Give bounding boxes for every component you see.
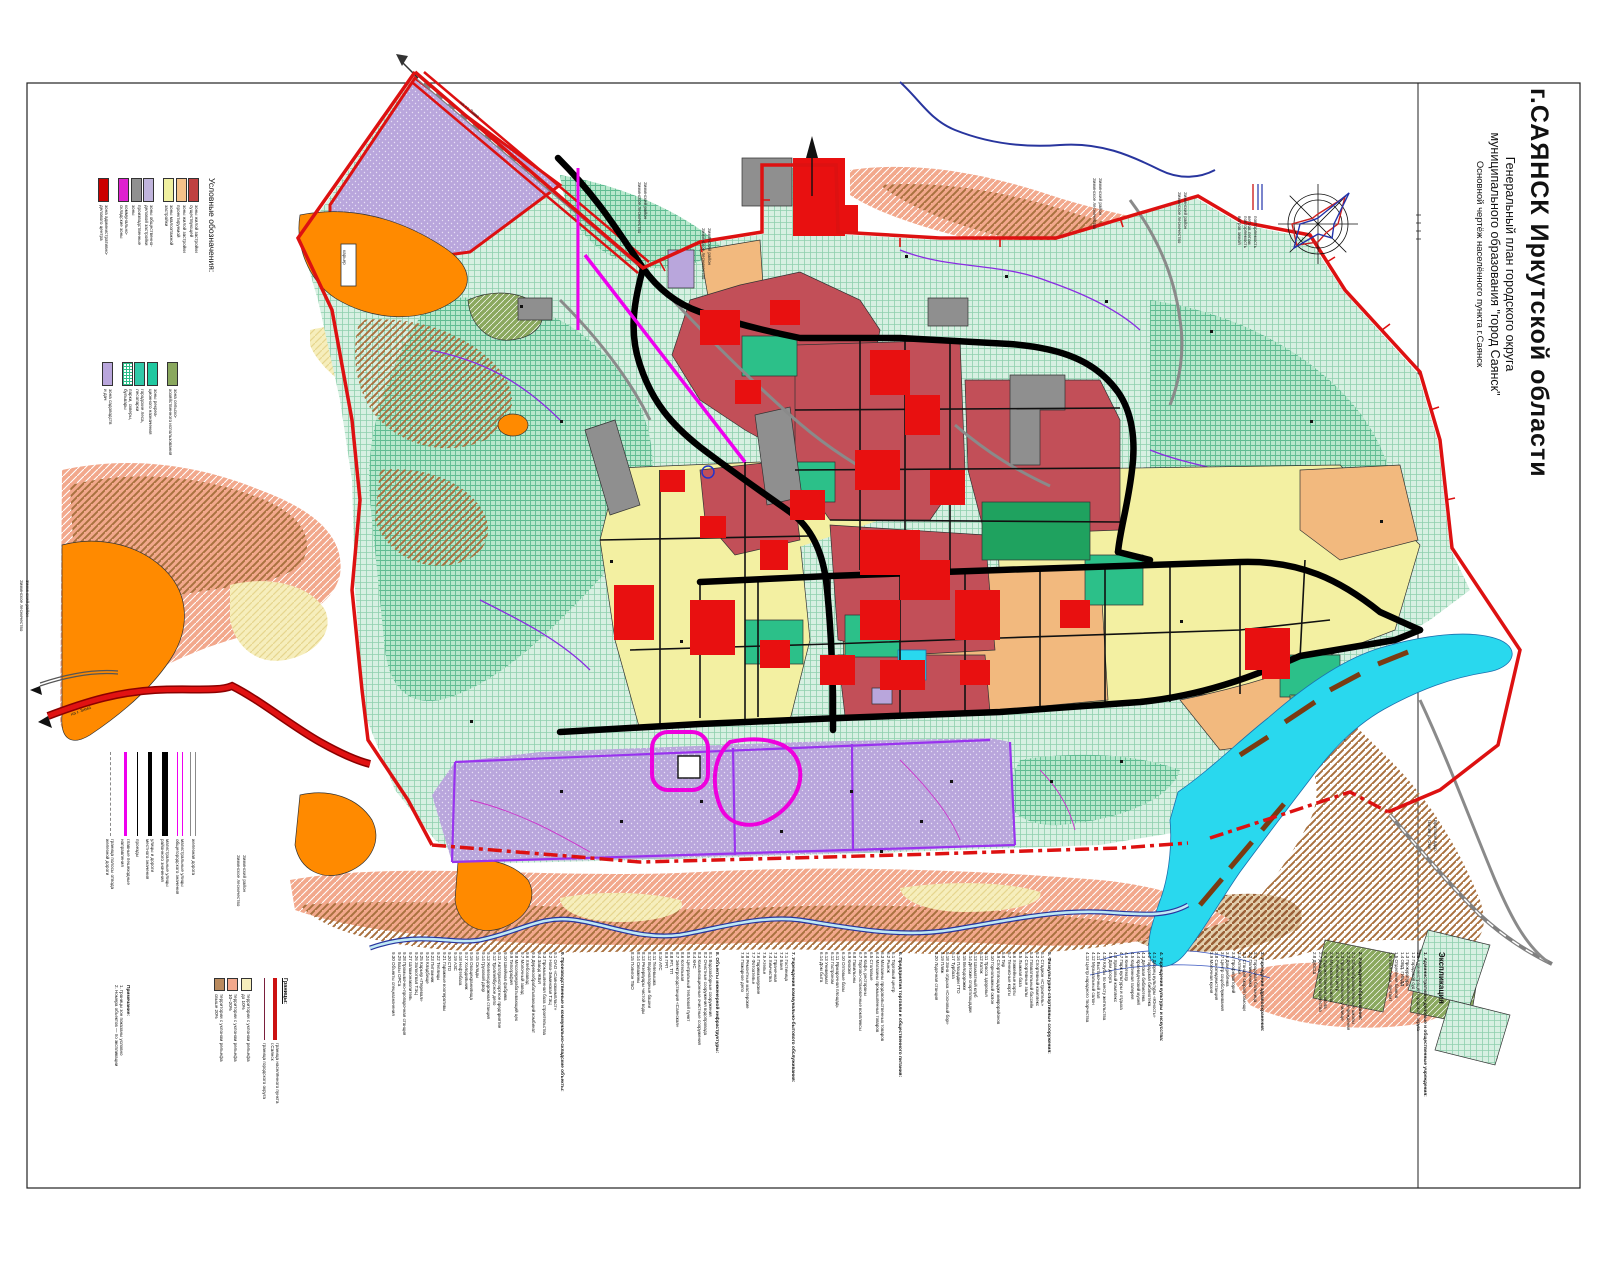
explication-item: 5.1 Стадион «Строитель» [1040,952,1046,1187]
legend-label: зоны рекреа- ционного назначения [147,389,158,434]
explication-item: 2.2 Детские дошкольные учреждения [1345,952,1351,1187]
explication-item: 4.9 Дом досуга [1107,952,1113,1187]
explication-item: 9.20 СТО [447,952,453,1187]
explication-item: 9.4 Завод ЖБИ [536,952,542,1187]
explication-item: 9.30 Объекты спецназначения [391,952,397,1187]
legend-label: коммунально- складские зоны [119,205,130,238]
borders-legend-item: территории с уклоном рельефа свыше 20% [214,978,225,1118]
explication-item: 8.12 Водонапорные башни [646,952,652,1187]
explication-item: 3.1 Городская больница [1253,952,1259,1187]
explication-group-header: 3. Учреждения здравоохранения: [1258,952,1264,1187]
explication-group: Экспликация [1428,952,1444,1187]
borders-legend-item: граница городского округа [262,978,267,1118]
slope-swatch [214,978,225,991]
explication-group: 7. Учреждения коммунально-бытового обслу… [735,952,795,1187]
explication-item: 5.6 Хоккейные корты [1012,952,1018,1187]
drawing-sheet: г.САЯНСК Иркутской области Генеральный п… [0,0,1600,1280]
explication-item: 9.28 Промывочно-пропарочная станция [402,952,408,1187]
explication-item: 1.6 Узел связи, почтамт [1388,952,1394,1187]
explication-group: 1. Административно-деловые и общественны… [1383,952,1427,1187]
explication-item: 5.2 Спортивный комплекс [1034,952,1040,1187]
explication-group-header: 6. Предприятия торговли и общественного … [896,952,902,1187]
explication-item: 8.11 Телевышка [652,952,658,1187]
explication-group-header: 5. Физкультурно-спортивные сооружения: [1045,952,1051,1187]
explication-item: 6.4 Магазины промышленных товаров [874,952,880,1187]
road-legend-item: проезды [135,752,140,908]
borders-legend-label: граница городского округа [262,1043,267,1113]
road-legend-label: главные пешеходные направления [120,839,131,885]
magenta-double-line-sample [177,752,183,836]
map-label: повторяемость ветров летом [1247,216,1258,248]
explication-group-header: 8. Объекты инженерной инфраструктуры: [713,952,719,1187]
sheet-subtitle-1: Генеральный план городского округа [1503,88,1517,440]
explication-item: 6.10 Оптовые базы [840,952,846,1187]
map-label: Зиминский район Зиминское лесничество [236,855,247,906]
black-thick-line-sample [162,752,168,836]
borders-legend-label: граница населённого пункта г.Саянск [269,1043,280,1113]
explication-item: 4.8 Храмовый комплекс [1113,952,1119,1187]
explication-item: 8.7 Электроподстанция «Саянская» [674,952,680,1187]
legend-label: зоны жилой застройки проектируемой [176,205,187,253]
road-legend-item: железная дорога [190,752,196,908]
legend-swatch [131,178,142,202]
borders-legend-label: территории с уклоном рельефа свыше 20% [214,994,225,1064]
explication-item: 5.20 Лодочная станция [934,952,940,1187]
boundary-line-sample [264,978,266,1040]
explication-item: 9.26 Золоотвал ТЭЦ [413,952,419,1187]
explication-group: Примечание:1. Границы зон показаны услов… [86,985,130,1220]
gray-dash-line-sample [110,752,111,836]
explication-item: 6.2 Рынок [885,952,891,1187]
explication-item: 6.3 Магазины продовольственных товаров [880,952,886,1187]
explication-group-header: Примечание: [124,985,130,1220]
legend-swatch [188,178,199,202]
explication-item: 4.7 Парк культуры и отдыха [1118,952,1124,1187]
explication-item: 8.10 АТС [657,952,663,1187]
map-label: Зиминский район Зиминское лесничество [637,182,648,233]
borders-legend-label: территории с уклоном рельефа 10–20% [227,994,238,1064]
explication-item: 7.5 Ателье [761,952,767,1187]
explication-item: 6.6 Кафе, рестораны [863,952,869,1187]
explication-group-header: 7. Учреждения коммунально-бытового обслу… [789,952,795,1187]
legend-item: зоны жилой застройки существующей [188,178,199,473]
boundary-line-sample [273,978,277,1040]
explication-item: 7.2 Баня [778,952,784,1187]
explication-item: 5.7 Теннисные корты [1006,952,1012,1187]
explication-item: 2.4 Учебный центр [1334,952,1340,1187]
road-legend-item: улицы и дороги местного значения [145,752,156,908]
explication-group-header: 4. Учреждения культуры и искусства: [1157,952,1163,1187]
explication-group: 5. Физкультурно-спортивные сооружения:5.… [925,952,1051,1187]
roads-legend: железная дорогамагистральные улицы общег… [78,752,196,908]
explication-item: 9.13 Железнодорожная станция [486,952,492,1187]
road-legend-label: граница полосы отвода железной дороги [105,839,116,889]
explication-item: 9.24 Кладбище [424,952,430,1187]
explication-item: 5.10 Горнолыжный склон [989,952,995,1187]
road-legend-item: граница полосы отвода железной дороги [105,752,116,908]
explication-item: 4.12 Музыкальный салон [1090,952,1096,1187]
legend-swatch [163,178,174,202]
explication-item: 1.4 ОВД, ГИБДД [1399,952,1405,1187]
road-legend-item: главные пешеходные направления [120,752,131,908]
explication-item: 6.11 Ярмарочная площадь [835,952,841,1187]
explication-item: 5.4 Спортивные залы [1023,952,1029,1187]
explication-item: 9.21 Гаражные кооперативы [441,952,447,1187]
black-thin-line-sample [137,752,139,836]
legend-label: зона садоводств и дач [102,389,113,424]
legend-swatch [176,178,187,202]
slope-swatch [241,978,252,991]
explication-item: 8.1 Водозаборные сооружения [708,952,714,1187]
legend-item: городские леса, лесопарки [135,362,146,474]
borders-legend-header: Границы: [282,978,288,1118]
explication-group: 6. Предприятия торговли и общественного … [812,952,902,1187]
explication-item: 4.11 Выставочный зал [1096,952,1102,1187]
explication-item: 5.19 Пляж [939,952,945,1187]
legend-label: парки, скверы, бульвары [122,389,133,420]
explication-group: 9. Производственные и коммунально-складс… [356,952,564,1187]
sheet-subtitle-3: Основной чертёж населённого пункта г.Сая… [1474,88,1485,440]
explication-item: 8.13 Резервуары чистой воды [641,952,647,1187]
explication-item: 2. Номера объектов — по экспликации [113,985,119,1220]
gray-double-line-sample [190,752,196,836]
explication-item: 3.8 Санэпидемстанция [1214,952,1220,1187]
explication-item: 4.5 Картинная галерея [1129,952,1135,1187]
explication-item: 9.25 Карьер «Перевал» [419,952,425,1187]
explication-item: 9.19 АЗС [452,952,458,1187]
explication-item: 7.9 Пожарное депо [739,952,745,1187]
explication-item: 9.23 Питомник [430,952,436,1187]
legend-item: зоны рекреа- ционного назначения [147,362,158,474]
explication-item: 9.7 Молочный завод [519,952,525,1187]
zones-legend-2: зона сельско- хозяйственного использован… [58,362,178,474]
explication-title: Экспликация [1438,952,1444,1187]
explication-item: 3.3 Станция скорой помощи [1242,952,1248,1187]
explication-item: 6.9 Киоски [846,952,852,1187]
explication-item: 2.6 Художественная школа [1323,952,1329,1187]
black-med-line-sample [148,752,151,836]
explication-item: 5.13 Шахматный клуб [973,952,979,1187]
legend-swatch [167,362,178,386]
borders-legend-item: территории с уклоном рельефа 10–20% [227,978,238,1118]
explication-item: 4.1 Дворец культуры «Юность» [1152,952,1158,1187]
legend-label: городские леса, лесопарки [135,389,146,423]
road-legend-label: магистральные улицы общегородского значе… [175,839,186,894]
explication-item: 8.3 Канализационные очистные сооружения [697,952,703,1187]
explication-item: 9.3 Промышленная база строительства [542,952,548,1187]
legend-label: зоны общественно- деловой застройки [144,205,155,247]
borders-legend-label: территории с уклоном рельефа до 10% [241,994,252,1064]
explication-item: 2.3 Профессиональное училище [1340,952,1346,1187]
road-legend-label: улицы и дороги местного значения [145,839,156,879]
explication-item: 3.5 Профилакторий [1230,952,1236,1187]
explication-item: 3.7 Центр соцобслуживания [1219,952,1225,1187]
explication-item: 5.16 Площадки ГТО [956,952,962,1187]
explication-item: 1.5 Отделения банков [1393,952,1399,1187]
legend-label: производственные зоны [131,205,142,245]
explication-item: 5.3 Плавательный бассейн [1029,952,1035,1187]
explication-item: 6.7 Торгово-остановочные комплексы [857,952,863,1187]
legend-swatch [118,178,129,202]
road-legend-label: проезды [135,839,140,857]
explication-item: 4.10 Клубы по месту жительства [1101,952,1107,1187]
explication-item: 7.3 Прачечная [773,952,779,1187]
explication-item: 3.4 Аптеки [1236,952,1242,1187]
explication-item: 4.13 Центр народного творчества [1085,952,1091,1187]
legend-label: зоны жилой застройки существующей [189,205,200,253]
explication-group: 3. Учреждения здравоохранения:3.1 Городс… [1202,952,1264,1187]
explication-item: 6.14 Дом быта [818,952,824,1187]
explication-item: 8.14 Скважины [635,952,641,1187]
legend-item: зона сельско- хозяйственного использован… [167,362,178,474]
slope-swatch [227,978,238,991]
legend-label: зона административно- делового центра [99,205,110,255]
explication-group: 4. Учреждения культуры и искусства:4.1 Д… [1075,952,1163,1187]
explication-item: 8.15 Полигон ТБО [630,952,636,1187]
explication-item: 9.8 Мясоперерабатывающий цех [514,952,520,1187]
explication-group-header: 1. Административно-деловые и общественны… [1421,952,1427,1187]
explication-item: 5.18 Зона отдыха «Сосновый бор» [945,952,951,1187]
explication-item: 6.13 Универмаг [824,952,830,1187]
explication-group-header: 9. Производственные и коммунально-складс… [558,952,564,1187]
explication-item: 4.4 Краеведческий музей [1135,952,1141,1187]
explication-item: 9.27 Шламонакопитель [407,952,413,1187]
road-legend-label: магистральные улицы районного значения [160,839,171,887]
explication-item: 2.7 Дом детского творчества [1317,952,1323,1187]
sheet-subtitle-2: муниципального образования "город Саянск… [1488,88,1502,440]
borders-legend-item: граница населённого пункта г.Саянск [269,978,280,1118]
explication-item: 5.9 Спортплощадки микрорайонов [995,952,1001,1187]
explication-item: 9.11 Автотранспортное предприятие [497,952,503,1187]
map-label: Зиминский район Зиминское лесничество [19,580,30,631]
explication-item: 9.2 Ново-Зиминская ТЭЦ [547,952,553,1187]
legend-label: зона сельско- хозяйственного использован… [167,389,178,455]
explication-item: 9.9 Типография [508,952,514,1187]
explication-group: 8. Объекты инженерной инфраструктуры:8.1… [625,952,719,1187]
explication-item: 8.5 Центральный тепловой пункт [685,952,691,1187]
sheet-title: г.САЯНСК Иркутской области [1524,88,1553,440]
title-block: г.САЯНСК Иркутской области Генеральный п… [1435,88,1553,440]
legend-header: Условные обозначения: [206,178,216,473]
map-label: Зиминский район Зиминское лесничество [1092,178,1103,229]
legend-item: зона садоводств и дач [102,362,113,474]
legend-swatch [122,362,133,386]
legend-swatch [102,362,113,386]
explication-item: 2.5 Музыкальная школа [1328,952,1334,1187]
explication-item: 7.8 Ремонтные мастерские [745,952,751,1187]
explication-item: 7.6 Парикмахерские [756,952,762,1187]
explication-item: 9.14 Грузовой двор [480,952,486,1187]
road-legend-item: магистральные улицы общегородского значе… [175,752,186,908]
magenta-line-sample [124,752,127,836]
legend-item: парки, скверы, бульвары [122,362,133,474]
map-label: Зиминский район Зиминское лесничество [1177,192,1188,243]
road-legend-label: железная дорога [190,839,195,875]
explication-item: 9.10 Швейная фабрика [502,952,508,1187]
explication-item: 9.16 Овощехранилища [469,952,475,1187]
explication-item: 8.9 ГРП [663,952,669,1187]
explication-item: 4.3 Детская библиотека [1141,952,1147,1187]
legend-label: зоны малоэтажной застройки [164,205,175,245]
explication-item: 1.2 Городской суд [1410,952,1416,1187]
explication-item: 5.15 Велодорожки [962,952,968,1187]
legend-swatch [98,178,109,202]
explication-item: 8.4 КНС [691,952,697,1187]
map-label: Братское вдхр. /залив р. Ока/ [1427,820,1438,852]
road-legend-item: магистральные улицы районного значения [160,752,171,908]
explication-item: 3.2 Поликлиника [1247,952,1253,1187]
legend-swatch [147,362,158,386]
explication-item: 9.29 Базы ОРСа [396,952,402,1187]
explication-item: 5.14 Детские спортплощадки [967,952,973,1187]
explication-item: 9.17 Холодильник [463,952,469,1187]
legend-swatch [135,362,146,386]
borders-legend: Границы:граница населённого пункта г.Сая… [152,978,288,1118]
legend-swatch [143,178,154,202]
explication-item: 7.4 Химчистка [767,952,773,1187]
explication-item: 2.1 Общеобразовательные школы [1351,952,1357,1187]
map-label: Зиминский район Зиминское лесничество [701,228,712,279]
map-label: карьер [342,250,348,265]
explication-group: 2. Учреждения образования:2.1 Общеобразо… [1302,952,1362,1187]
explication-item: 5.11 Трасса здоровья [984,952,990,1187]
industrial-site-north [793,158,858,236]
explication-item: 3.9 Молочная кухня [1208,952,1214,1187]
explication-item: 9.5 Деревообрабатывающий комбинат [530,952,536,1187]
explication-group-header: 2. Учреждения образования: [1356,952,1362,1187]
explication-item: 8.2 Очистные сооружения водопровода [702,952,708,1187]
borders-legend-item: территории с уклоном рельефа до 10% [241,978,252,1118]
explication-item: 9.12 Троллейбусное депо [491,952,497,1187]
explication-item: 4.2 Городская библиотека [1146,952,1152,1187]
explication-item: 1. Границы зон показаны условно [119,985,125,1220]
